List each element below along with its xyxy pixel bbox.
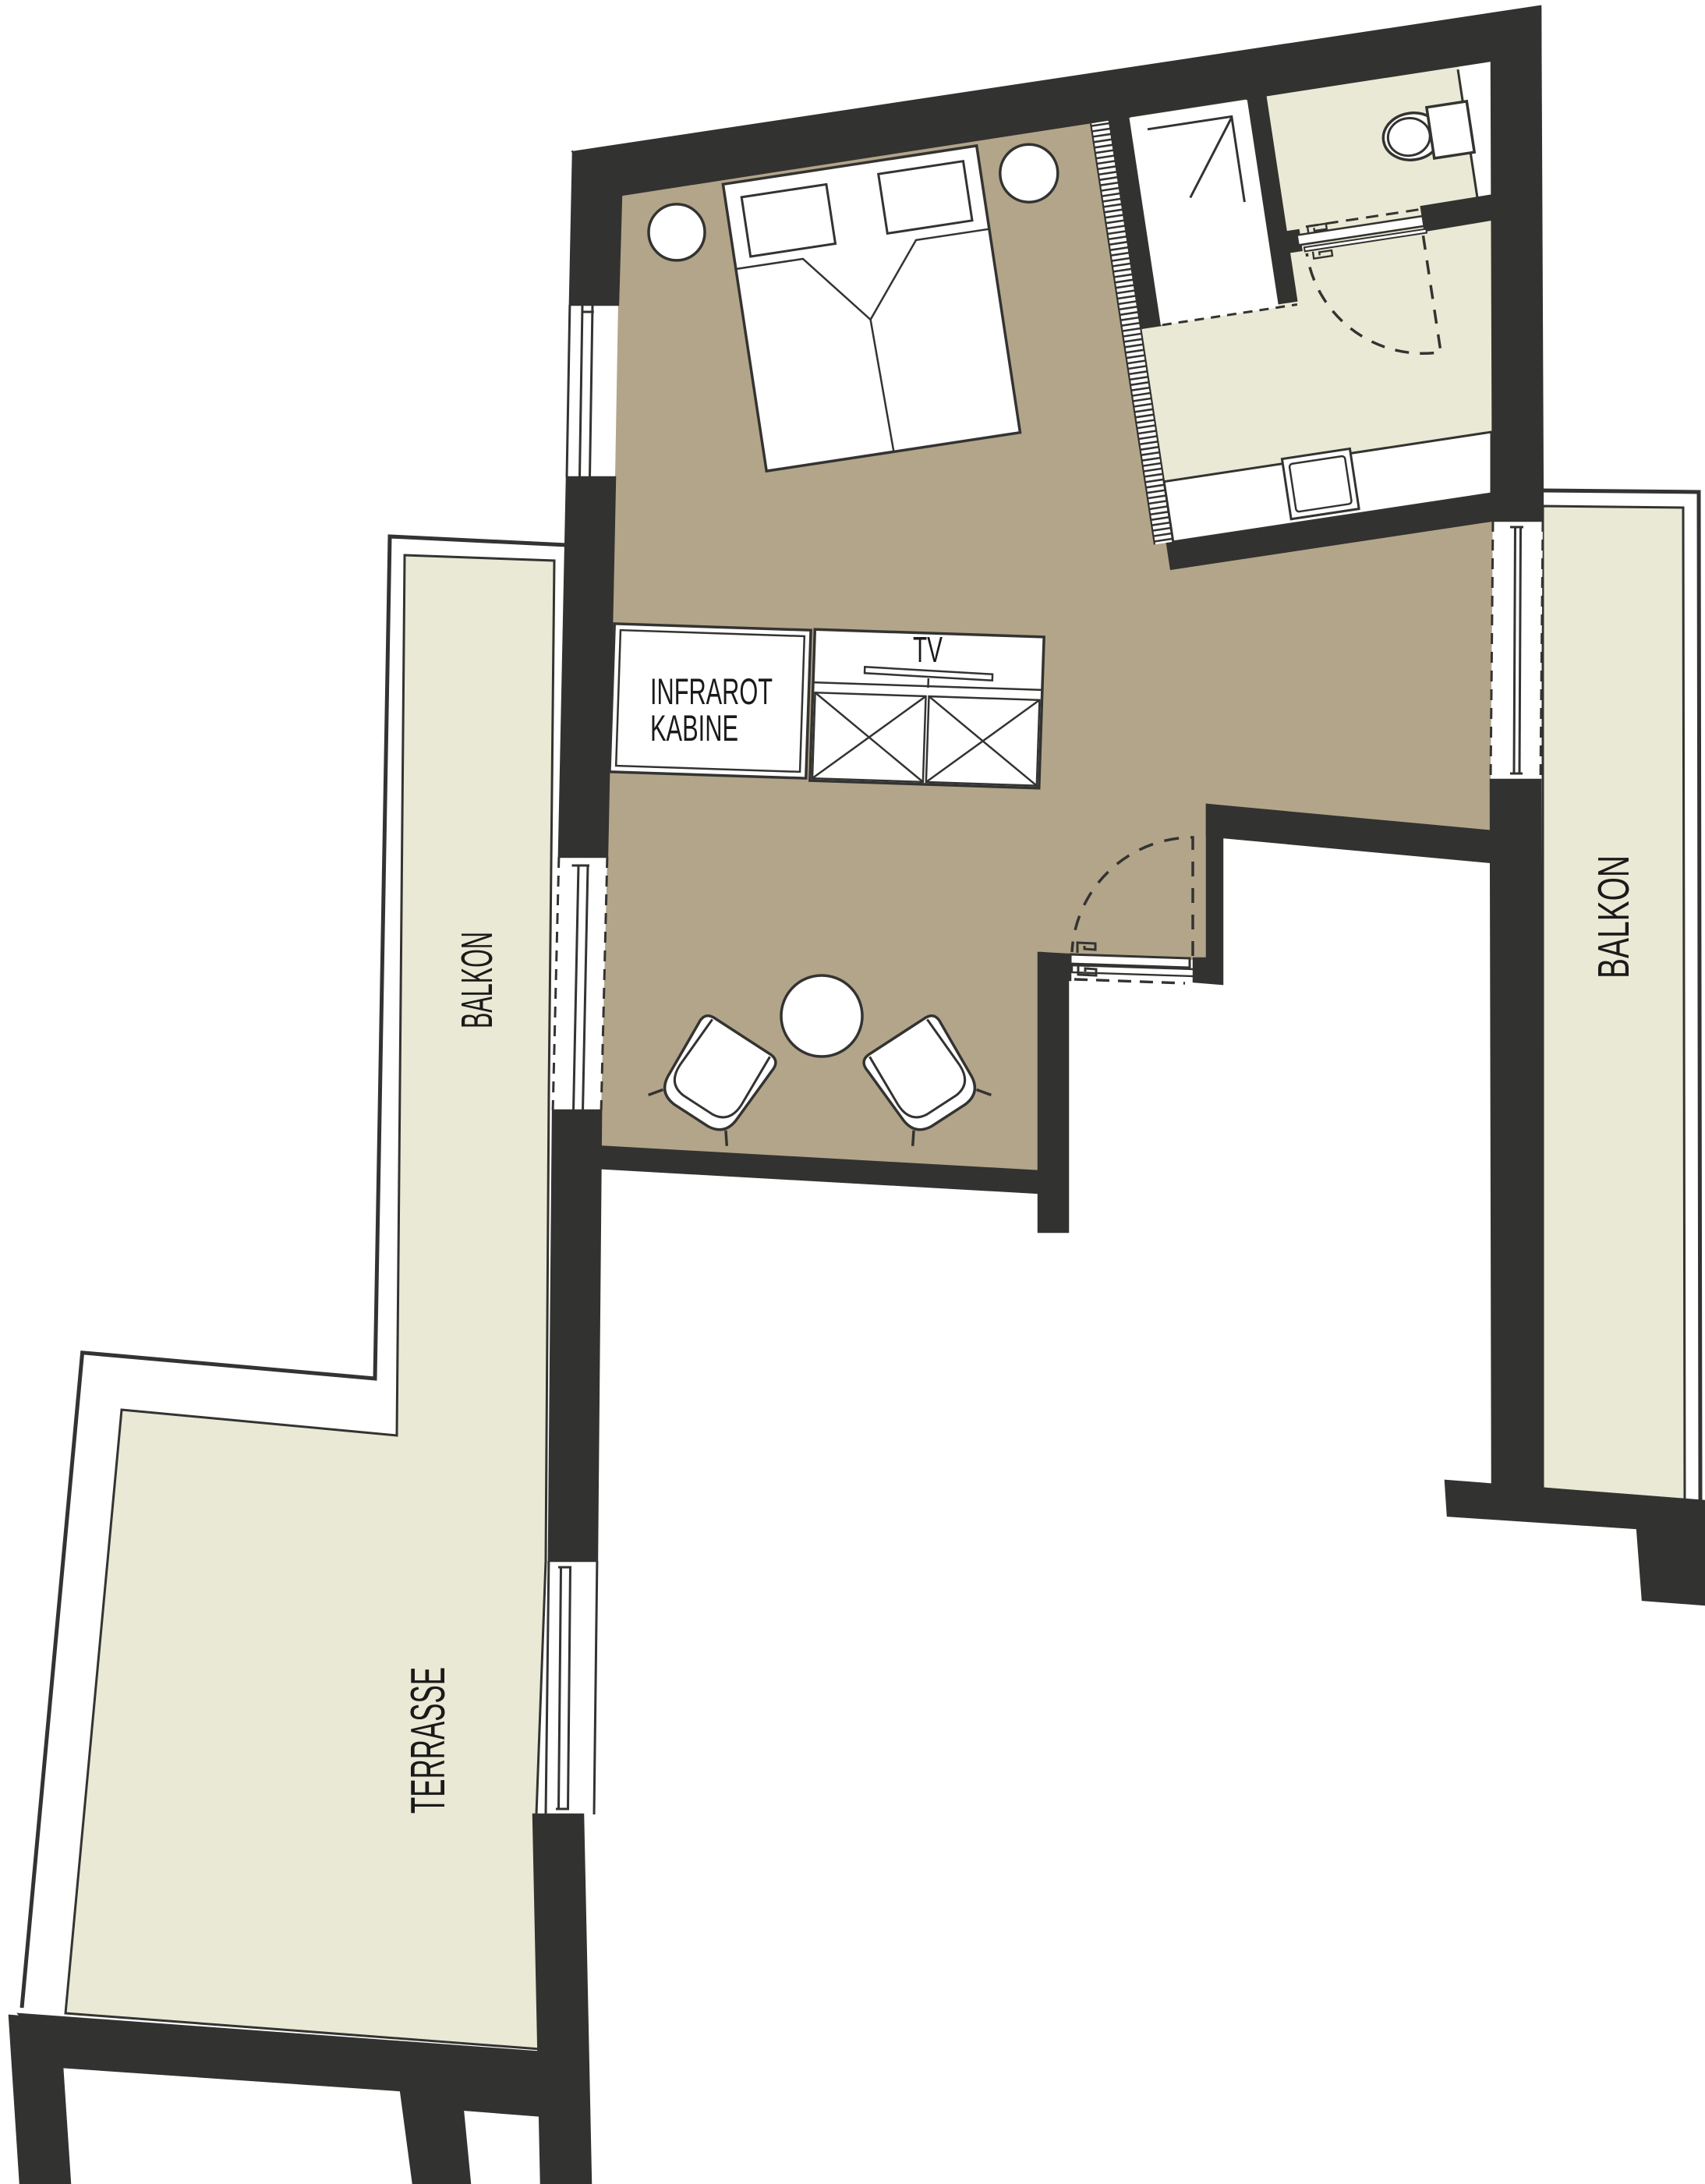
svg-text:TERRASSE: TERRASSE: [401, 1667, 455, 1814]
svg-text:BALKON: BALKON: [452, 932, 502, 1028]
svg-text:KABINE: KABINE: [650, 707, 738, 749]
svg-text:BALKON: BALKON: [1589, 855, 1639, 979]
svg-text:TV: TV: [913, 629, 943, 670]
svg-text:INFRAROT: INFRAROT: [650, 671, 773, 712]
